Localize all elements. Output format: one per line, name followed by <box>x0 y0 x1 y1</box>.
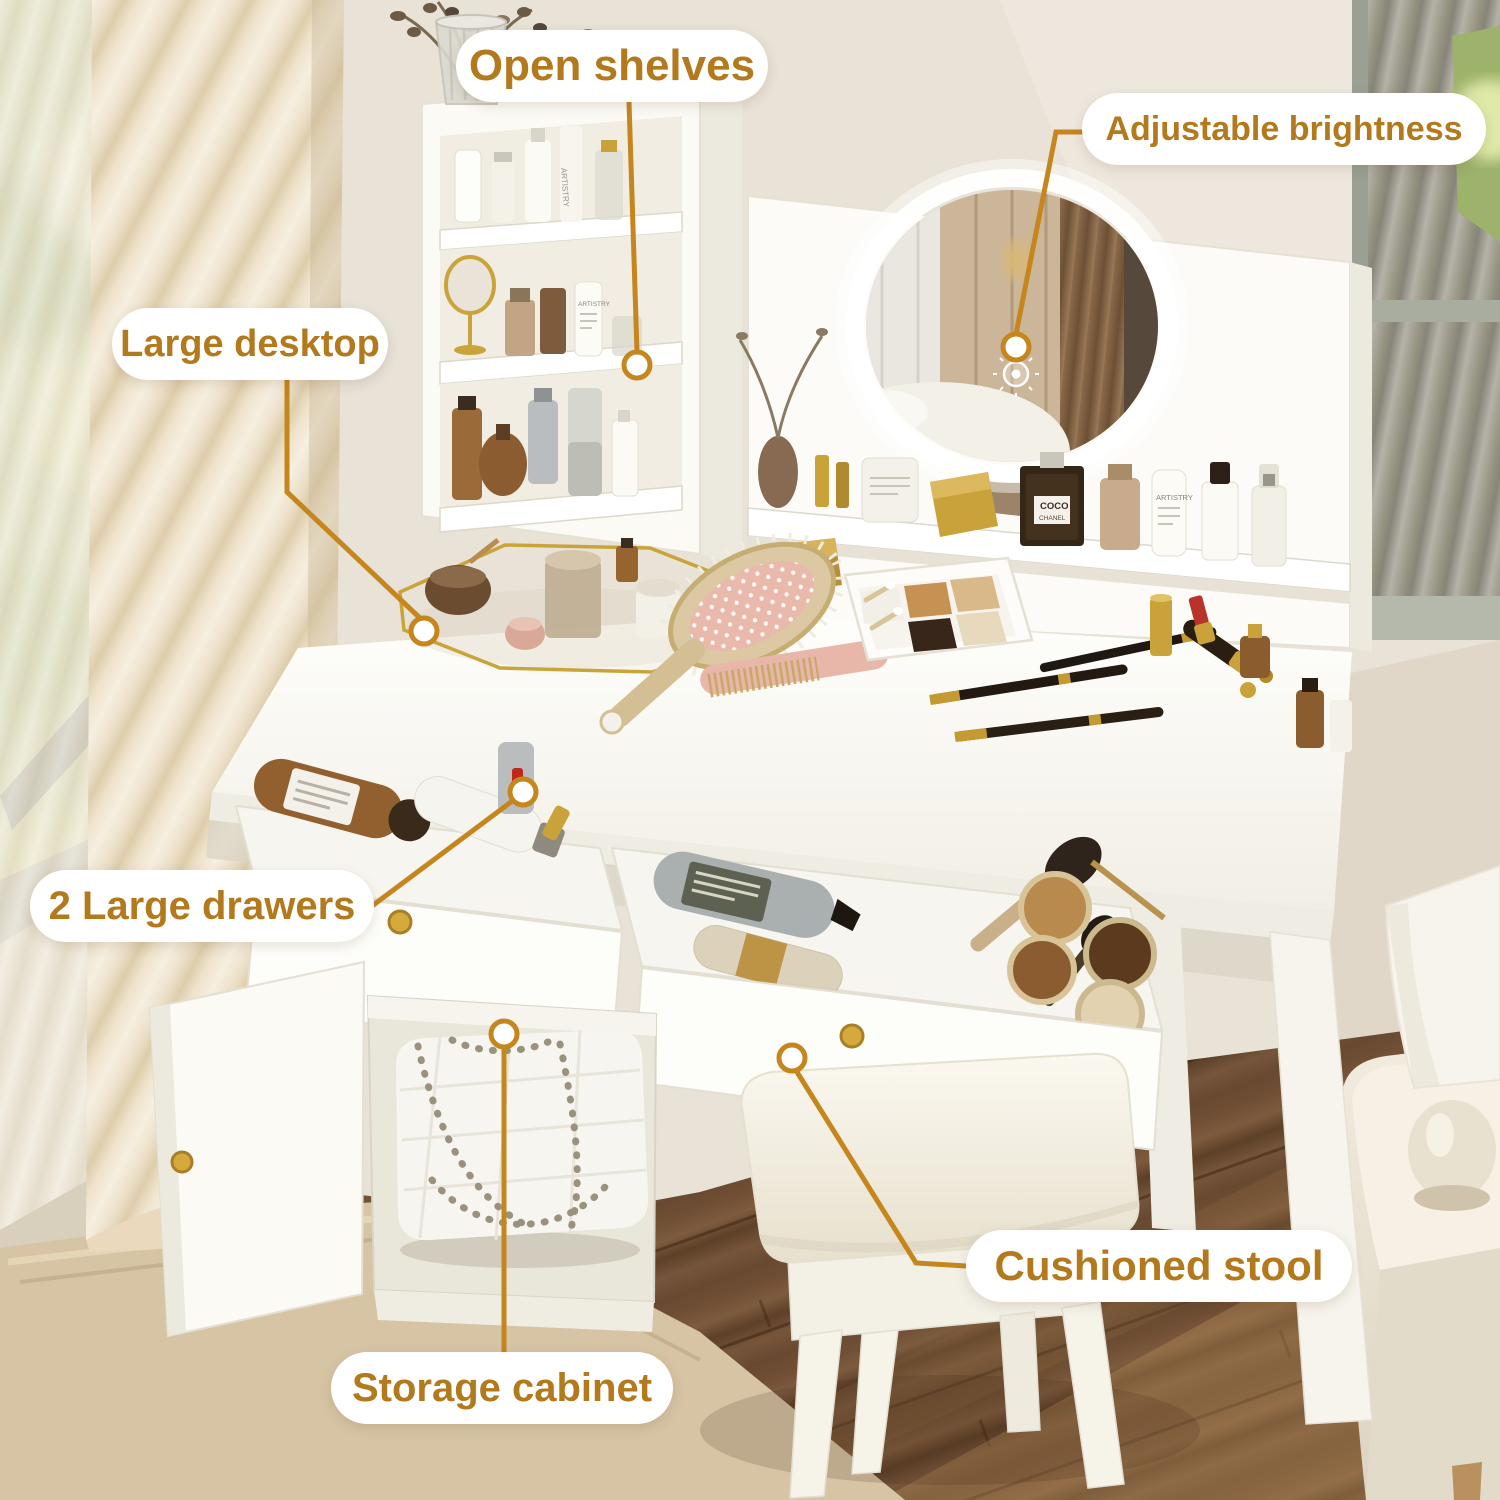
cabinet-door-knob <box>172 1152 192 1172</box>
storage-cabinet-dot <box>491 1021 517 1047</box>
callout-cushioned-stool-label: Cushioned stool <box>995 1245 1324 1287</box>
drawer-left-knob <box>389 911 411 933</box>
cushioned-stool-dot <box>779 1045 805 1071</box>
callout-storage-cabinet: Storage cabinet <box>331 1352 673 1424</box>
product-brand-text: ARTISTRY <box>578 301 611 308</box>
storage-cabinet-body <box>150 962 656 1336</box>
callout-large-desktop-label: Large desktop <box>120 325 380 363</box>
perfume-label-text: COCO <box>1040 501 1069 512</box>
open-shelves-dot <box>624 352 650 378</box>
drawer-right-knob <box>841 1025 863 1047</box>
sheer-curtain <box>0 0 96 1230</box>
large-desktop-dot <box>411 618 437 644</box>
adjustable-brightness-dot <box>1003 334 1029 360</box>
callout-two-large-drawers: 2 Large drawers <box>30 870 374 942</box>
nightstand-leg <box>1452 1462 1482 1500</box>
callout-storage-cabinet-label: Storage cabinet <box>352 1368 652 1408</box>
two-large-drawers-dot <box>510 779 536 805</box>
coco-perfume-bottle: COCO CHANEL <box>1020 452 1084 546</box>
perfume-sublabel-text: CHANEL <box>1039 515 1066 522</box>
callout-adjustable-brightness: Adjustable brightness <box>1082 93 1486 165</box>
callout-open-shelves: Open shelves <box>456 30 768 102</box>
callout-adjustable-brightness-label: Adjustable brightness <box>1105 112 1462 146</box>
callout-two-large-drawers-label: 2 Large drawers <box>49 886 356 926</box>
callout-large-desktop: Large desktop <box>112 308 388 380</box>
product-brand-text: ARTISTRY <box>1156 493 1193 502</box>
handbag <box>396 1030 648 1240</box>
callout-open-shelves-label: Open shelves <box>469 44 755 88</box>
vanity-hutch-tower: ARTISTRY ARTISTRY <box>422 84 742 566</box>
product-annotation-image: ARTISTRY ARTISTRY <box>0 0 1500 1500</box>
callout-cushioned-stool: Cushioned stool <box>966 1230 1352 1302</box>
cabinet-door <box>150 962 364 1336</box>
